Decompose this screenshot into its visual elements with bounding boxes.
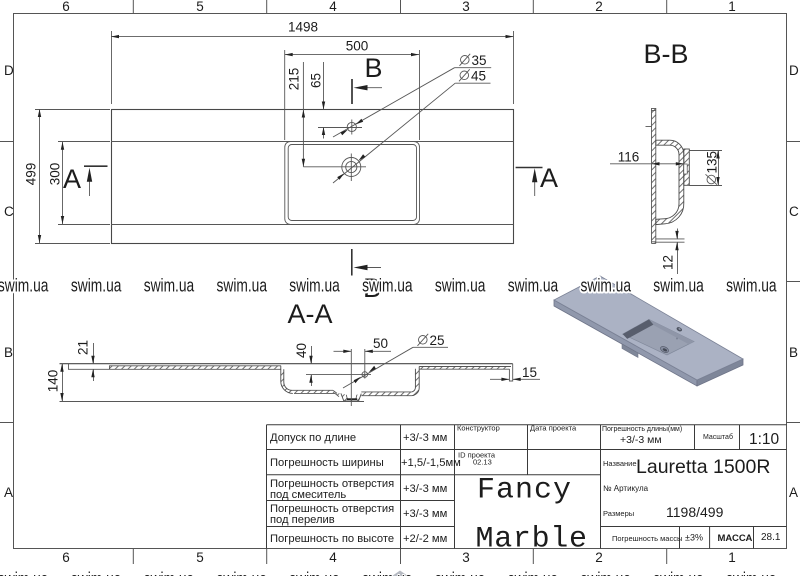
svg-text:swim.ua: swim.ua bbox=[726, 569, 777, 576]
svg-text:1498: 1498 bbox=[288, 20, 318, 35]
svg-text:Погрешность длины(мм): Погрешность длины(мм) bbox=[602, 426, 682, 433]
svg-text:1198/499: 1198/499 bbox=[666, 504, 724, 520]
svg-text:215: 215 bbox=[287, 68, 302, 91]
svg-text:3: 3 bbox=[462, 0, 470, 14]
svg-text:25: 25 bbox=[430, 333, 445, 348]
svg-text:50: 50 bbox=[373, 336, 388, 351]
svg-text:1: 1 bbox=[728, 0, 736, 14]
svg-text:swim.ua: swim.ua bbox=[0, 275, 49, 295]
svg-text:B-B: B-B bbox=[643, 39, 688, 69]
svg-text:swim.ua: swim.ua bbox=[144, 275, 195, 295]
svg-text:A: A bbox=[63, 164, 81, 194]
svg-text:5: 5 bbox=[196, 0, 204, 14]
svg-text:21: 21 bbox=[76, 340, 91, 355]
svg-text:A: A bbox=[789, 485, 798, 500]
svg-text:C: C bbox=[4, 204, 14, 219]
svg-text:+3/-3 мм: +3/-3 мм bbox=[403, 483, 447, 495]
svg-text:swim.ua: swim.ua bbox=[435, 569, 486, 576]
svg-text:+3/-3 мм: +3/-3 мм bbox=[403, 432, 447, 444]
svg-text:35: 35 bbox=[472, 53, 487, 68]
svg-text:6: 6 bbox=[62, 0, 70, 14]
svg-text:B: B bbox=[789, 345, 798, 360]
svg-text:±3%: ±3% bbox=[685, 533, 703, 543]
svg-text:15: 15 bbox=[522, 365, 537, 380]
svg-text:Fancy: Fancy bbox=[477, 474, 572, 508]
svg-text:D: D bbox=[789, 63, 799, 78]
svg-text:Погрешность ширины: Погрешность ширины bbox=[270, 457, 384, 469]
svg-text:swim.ua: swim.ua bbox=[289, 275, 340, 295]
svg-text:12: 12 bbox=[661, 255, 676, 270]
svg-text:swim.ua: swim.ua bbox=[508, 569, 559, 576]
svg-text:500: 500 bbox=[346, 39, 369, 54]
svg-text:Допуск по длине: Допуск по длине bbox=[270, 432, 356, 444]
svg-text:02.13: 02.13 bbox=[473, 458, 492, 467]
svg-text:116: 116 bbox=[618, 150, 640, 165]
svg-text:A: A bbox=[540, 163, 558, 193]
svg-text:swim.ua: swim.ua bbox=[71, 569, 122, 576]
svg-text:№ Артикула: № Артикула bbox=[603, 484, 649, 493]
svg-text:под перелив: под перелив bbox=[270, 514, 335, 526]
svg-text:Lauretta 1500R: Lauretta 1500R bbox=[636, 456, 770, 478]
svg-text:40: 40 bbox=[294, 343, 309, 358]
svg-text:2: 2 bbox=[595, 550, 603, 565]
svg-text:1: 1 bbox=[728, 550, 736, 565]
svg-text:swim.ua: swim.ua bbox=[217, 569, 268, 576]
svg-text:A: A bbox=[4, 485, 13, 500]
svg-text:swim.ua: swim.ua bbox=[581, 275, 632, 295]
svg-text:4: 4 bbox=[329, 0, 337, 14]
svg-text:swim.ua: swim.ua bbox=[217, 275, 268, 295]
svg-text:Размеры: Размеры bbox=[603, 509, 634, 518]
svg-text:+3/-3 мм: +3/-3 мм bbox=[403, 508, 447, 520]
svg-text:Marble: Marble bbox=[476, 523, 588, 557]
svg-text:Дата проекта: Дата проекта bbox=[530, 424, 577, 433]
svg-text:300: 300 bbox=[48, 163, 63, 186]
svg-text:swim.ua: swim.ua bbox=[362, 275, 413, 295]
svg-text:Масштаб: Масштаб bbox=[703, 433, 733, 441]
svg-text:+3/-3 мм: +3/-3 мм bbox=[620, 434, 662, 446]
svg-text:65: 65 bbox=[309, 73, 324, 88]
svg-text:swim.ua: swim.ua bbox=[653, 275, 704, 295]
svg-text:swim.ua: swim.ua bbox=[726, 275, 777, 295]
svg-text:swim.ua: swim.ua bbox=[581, 569, 632, 576]
svg-text:под смеситель: под смеситель bbox=[270, 489, 346, 501]
svg-text:B: B bbox=[365, 53, 383, 83]
svg-text:B: B bbox=[4, 345, 13, 360]
svg-text:4: 4 bbox=[329, 550, 337, 565]
svg-text:swim.ua: swim.ua bbox=[71, 275, 122, 295]
svg-text:2: 2 bbox=[595, 0, 603, 14]
svg-text:Название: Название bbox=[603, 459, 637, 468]
svg-text:C: C bbox=[789, 204, 799, 219]
svg-text:A-A: A-A bbox=[287, 299, 332, 329]
svg-text:swim.ua: swim.ua bbox=[653, 569, 704, 576]
svg-text:28.1: 28.1 bbox=[761, 532, 781, 543]
svg-text:swim.ua: swim.ua bbox=[0, 569, 49, 576]
svg-text:Погрешность по высоте: Погрешность по высоте bbox=[270, 533, 394, 545]
svg-text:swim.ua: swim.ua bbox=[289, 569, 340, 576]
svg-text:Погрешность массы: Погрешность массы bbox=[612, 534, 682, 543]
svg-text:6: 6 bbox=[62, 550, 70, 565]
svg-text:+2/-2 мм: +2/-2 мм bbox=[403, 533, 447, 545]
svg-text:МАССА: МАССА bbox=[718, 533, 753, 544]
svg-text:135: 135 bbox=[704, 151, 719, 174]
svg-text:45: 45 bbox=[471, 69, 486, 84]
svg-text:swim.ua: swim.ua bbox=[435, 275, 486, 295]
svg-text:499: 499 bbox=[24, 163, 39, 186]
svg-text:5: 5 bbox=[196, 550, 204, 565]
svg-text:D: D bbox=[4, 63, 14, 78]
svg-text:swim.ua: swim.ua bbox=[508, 275, 559, 295]
svg-text:1:10: 1:10 bbox=[749, 431, 780, 448]
svg-text:+1,5/-1,5мм: +1,5/-1,5мм bbox=[401, 457, 461, 469]
svg-text:3: 3 bbox=[462, 550, 470, 565]
svg-text:swim.ua: swim.ua bbox=[362, 569, 413, 576]
svg-text:swim.ua: swim.ua bbox=[144, 569, 195, 576]
svg-text:140: 140 bbox=[46, 370, 61, 393]
svg-text:Конструктор: Конструктор bbox=[457, 424, 500, 433]
